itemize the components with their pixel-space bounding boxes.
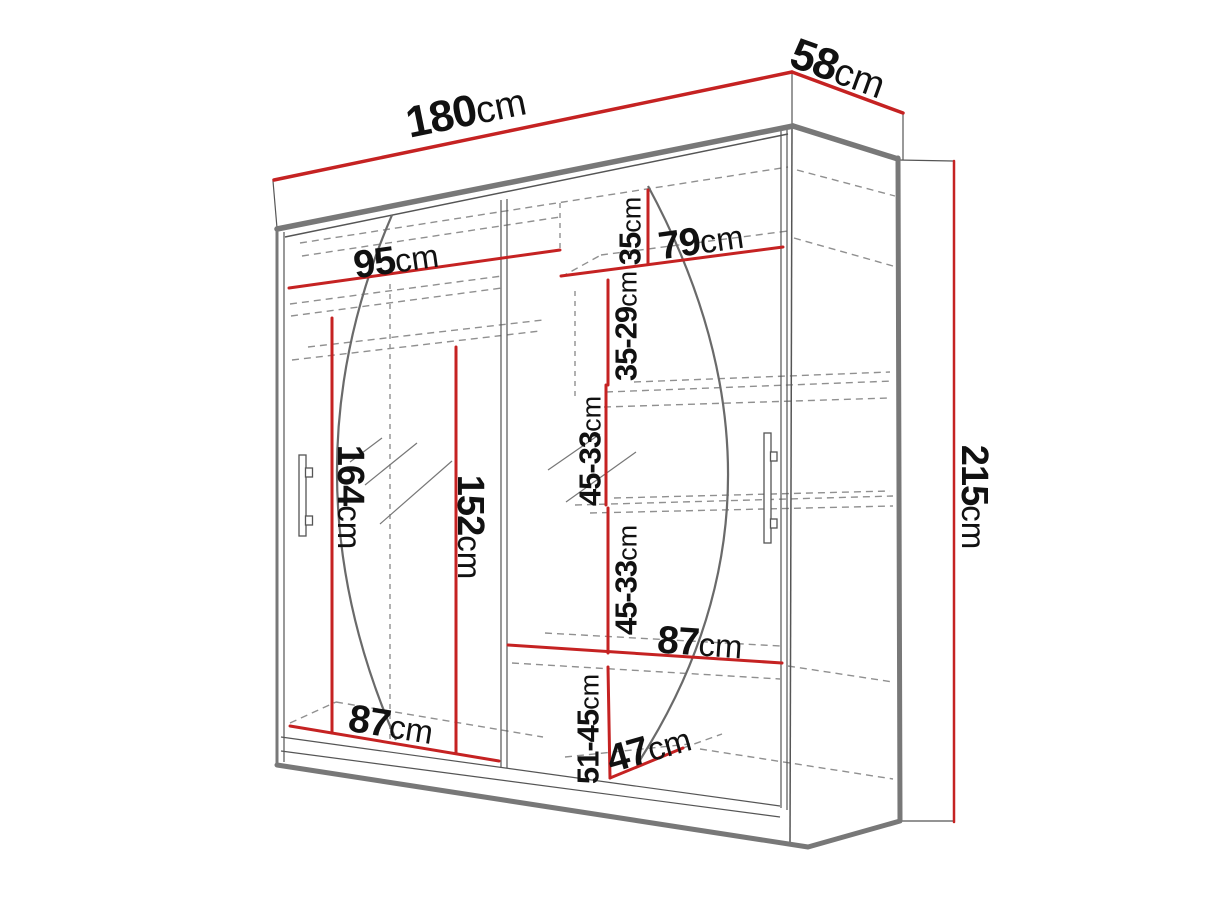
dimension-label-height-total: 215cm xyxy=(955,445,993,549)
dimension-label-gap-top-right: 35cm xyxy=(615,197,646,265)
dimension-line-180cm xyxy=(274,72,792,180)
dimension-label-gap-bottom-right: 51-45cm xyxy=(573,674,604,784)
dimension-label-inner-height-left: 152cm xyxy=(451,475,489,579)
wardrobe-dimension-diagram: 180cm 58cm 215cm 95cm 79cm 35cm 35-29cm … xyxy=(0,0,1212,909)
dimension-label-hanging-height-left: 164cm xyxy=(331,445,369,549)
dimension-label-gap-third-right: 45-33cm xyxy=(575,396,606,506)
dimension-label-gap-fourth-right: 45-33cm xyxy=(611,525,642,635)
right-door-handle xyxy=(764,433,777,543)
dimension-label-gap-second-right: 35-29cm xyxy=(611,271,642,381)
left-door-handle xyxy=(299,455,313,536)
dimension-label-shelf-width-middle: 87cm xyxy=(656,621,744,666)
